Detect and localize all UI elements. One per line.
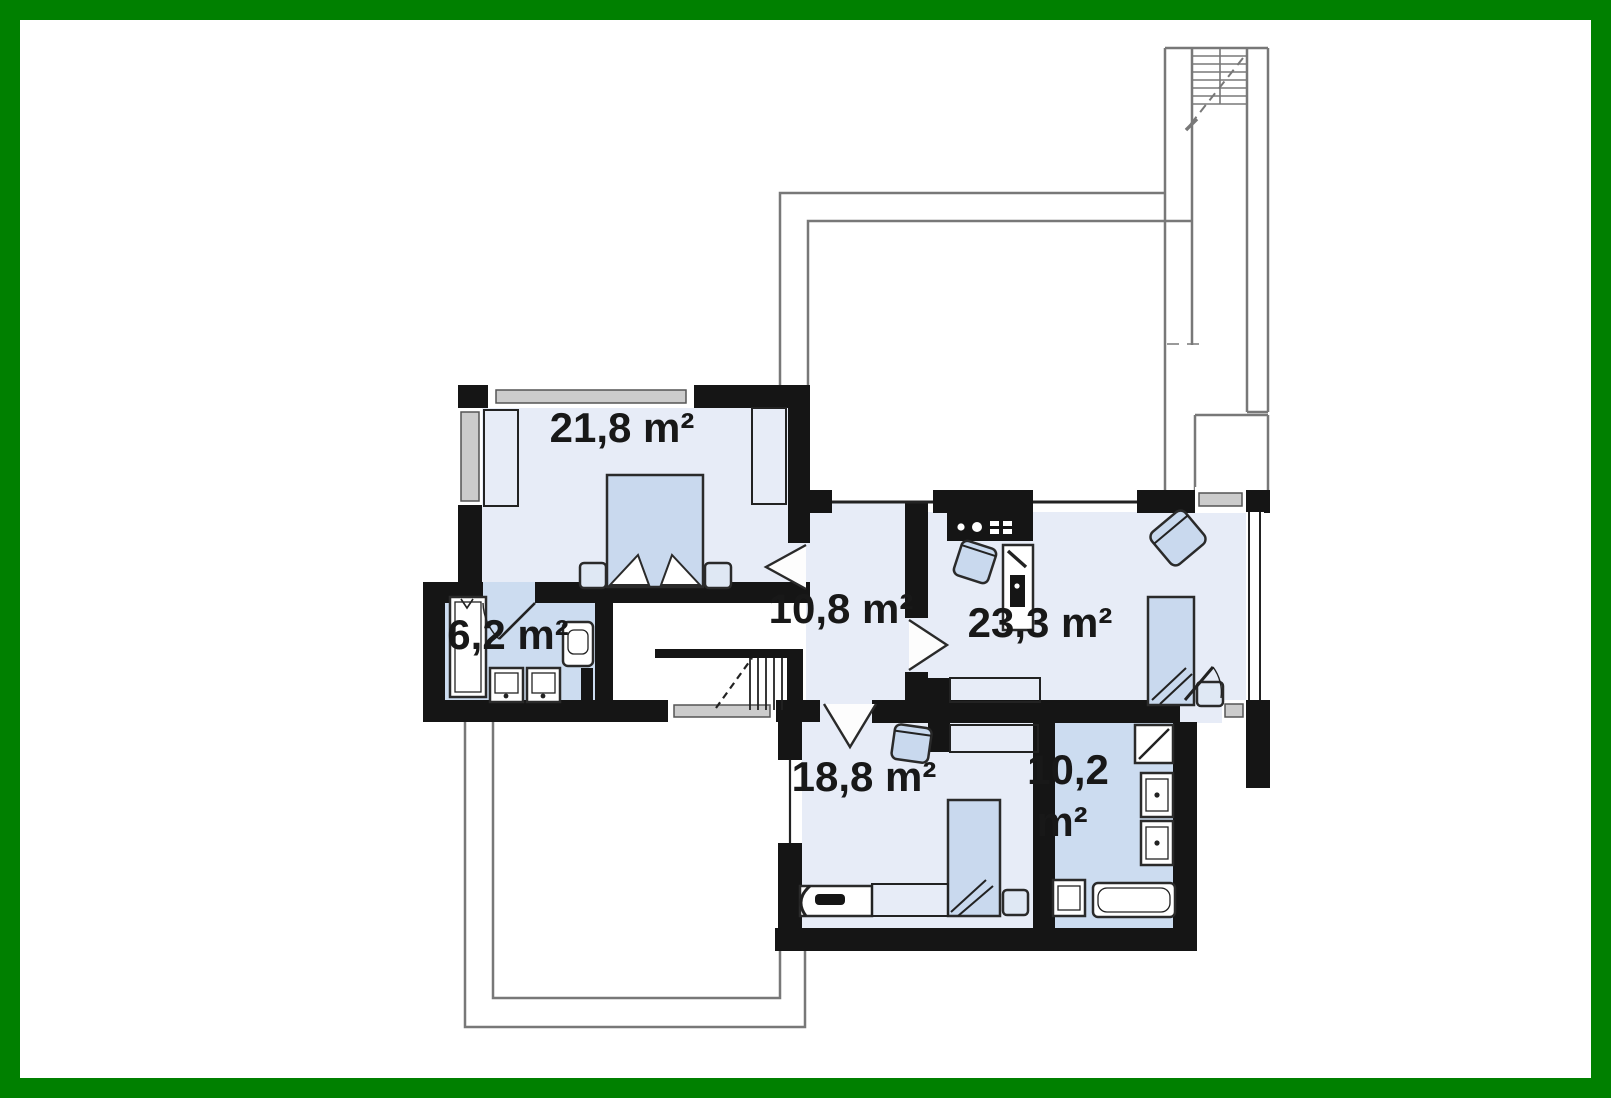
floor-plan-page: 21,8 m² 6,2 m² 10,8 m² 23,3 m² 18,8 m² 1… — [0, 0, 1611, 1098]
bed-icon — [607, 475, 703, 587]
roof-outline-top — [780, 193, 1192, 385]
bed-icon — [948, 800, 1000, 916]
area-label-ensuite-bathroom: 6,2 m² — [447, 611, 568, 658]
stair-treads-outline — [1192, 48, 1247, 104]
area-label-bathroom-bottom-line1: 10,2 — [1027, 746, 1109, 793]
external-staircase-outline — [1165, 48, 1268, 490]
stair-rail-wall — [655, 649, 787, 658]
area-label-bathroom-bottom-line2: m² — [1036, 798, 1087, 845]
shower-icon — [1135, 725, 1173, 763]
nightstand-icon — [705, 563, 731, 588]
area-label-bedroom-right: 23,3 m² — [968, 599, 1113, 646]
nightstand-icon — [1003, 890, 1028, 915]
nightstand-icon — [1197, 682, 1223, 706]
terrace-outline-bottom-left — [465, 722, 805, 1027]
area-label-bedroom-bottom: 18,8 m² — [792, 753, 937, 800]
bath-cabinet-icon — [581, 668, 593, 700]
floor-door-gap-ensuite — [483, 582, 535, 603]
room-floors — [445, 406, 1248, 930]
stair-side-wall — [787, 649, 803, 712]
area-label-bedroom-top-left: 21,8 m² — [550, 404, 695, 451]
desk-counter-icon — [947, 513, 1033, 541]
nightstand-icon — [580, 563, 606, 588]
desk-icon — [800, 886, 872, 916]
floor-plan-svg: 21,8 m² 6,2 m² 10,8 m² 23,3 m² 18,8 m² 1… — [0, 0, 1611, 1098]
area-label-hall: 10,8 m² — [769, 585, 914, 632]
bed-icon — [1148, 597, 1194, 705]
window-room23-right — [1246, 512, 1264, 700]
